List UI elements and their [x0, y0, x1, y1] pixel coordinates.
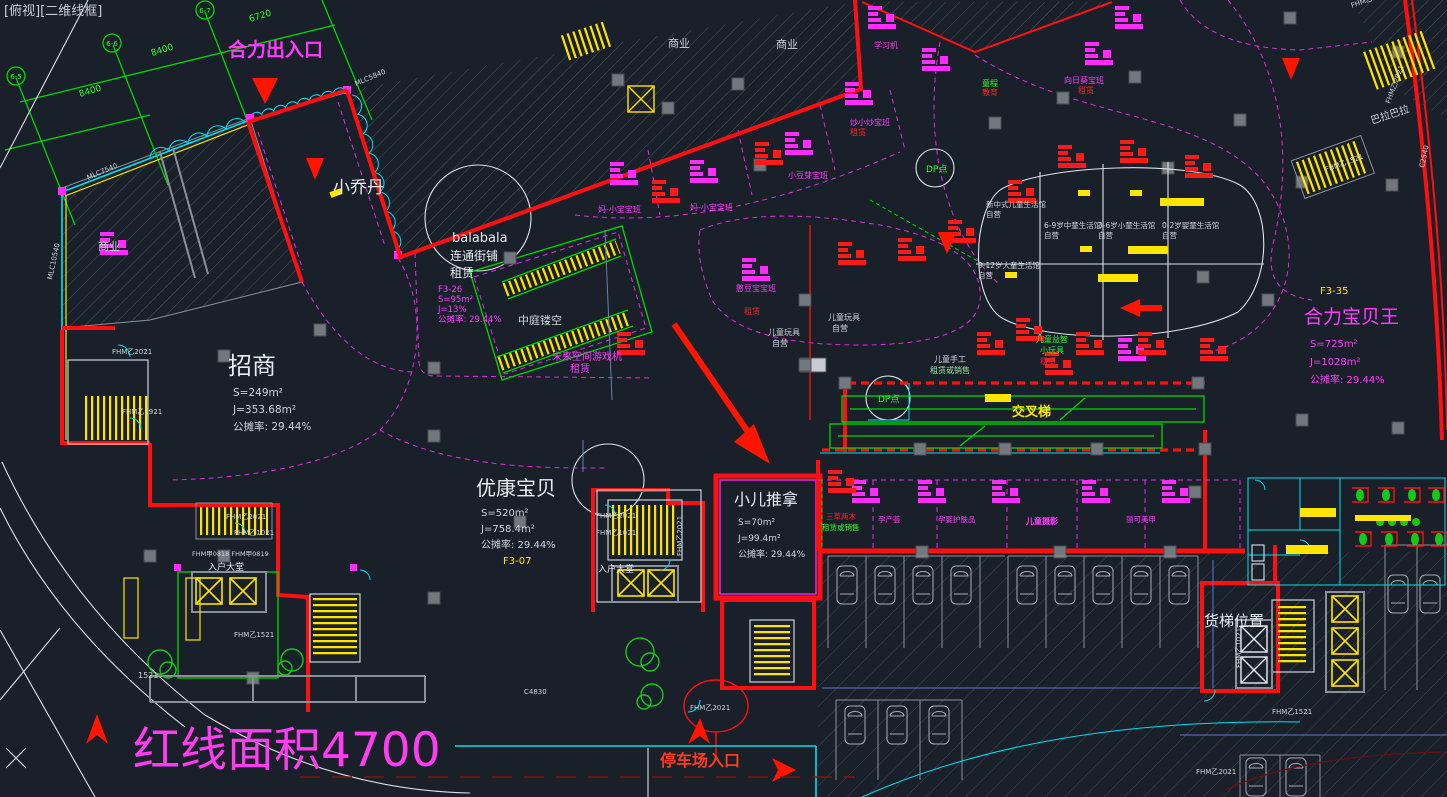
shop-label: 儿童摄影: [1025, 516, 1058, 526]
kids-zone-sub: 租赁: [1040, 356, 1056, 366]
door-tag: FHM乙1521: [234, 631, 274, 639]
kids-zone-sub: 自营: [832, 323, 848, 333]
life-hall-label: 3-6岁小童生活馆: [1098, 220, 1156, 230]
kids-zone-label: 儿童益智: [1036, 334, 1068, 344]
life-hall-label: 6-9岁中童生活馆: [1044, 220, 1102, 230]
life-hall-blob: [976, 162, 1264, 340]
shops-row: [818, 480, 1240, 548]
classroom-sub: 租赁: [744, 306, 760, 316]
kids-zone-label: 儿童手工: [934, 354, 966, 364]
entrance-label: 合力出入口: [228, 38, 323, 61]
kids-zone-sub: 自营: [772, 338, 788, 348]
door-tag: FHM乙2021: [112, 348, 152, 356]
youkang-share: 公摊率: 29.44%: [481, 538, 556, 551]
balabala-line3: 租赁: [450, 266, 474, 280]
life-hall-label: 0-2岁婴童生活馆: [1162, 220, 1220, 230]
balabala-code: F3-26: [438, 285, 462, 295]
classroom-label: 炒小炒宝班: [850, 117, 890, 127]
door-tag: FHM乙1521: [1272, 708, 1312, 716]
life-hall-label: 9-12岁大童生活馆: [978, 260, 1041, 270]
callout-arrow-line: [674, 324, 748, 432]
youkang-code: F3-07: [503, 556, 531, 567]
tuina-name: 小儿推拿: [734, 490, 798, 509]
commercial-label: 商业: [98, 239, 120, 253]
door-tag: FHM乙2021: [596, 512, 636, 520]
dp-point-label: DP点: [878, 394, 899, 405]
classroom-sub: 租赁: [850, 127, 866, 137]
life-hall-sub: 自营: [986, 209, 1001, 219]
shop-sub: 租赁或销售: [822, 522, 860, 532]
life-hall-label: 新中式儿童生活馆: [986, 199, 1046, 209]
classroom-sub: 租赁: [1078, 85, 1094, 95]
baobeiwang-s: S=725m²: [1310, 339, 1358, 350]
life-hall-sub: 自营: [1098, 230, 1114, 240]
viewport-control-label[interactable]: [俯视][二维线框]: [4, 3, 102, 19]
wall-tag: C2540: [1418, 145, 1431, 169]
life-hall-sub: 自营: [1162, 230, 1178, 240]
road-arrow-icon: [1282, 58, 1300, 80]
shop-label: 孕婴护肤品: [938, 514, 976, 524]
grid-bubble: 6-5: [10, 73, 21, 81]
baobeiwang-j: J=1028m²: [1309, 357, 1361, 368]
classroom-label: 小豆芽宝班: [788, 170, 828, 180]
grid-dimension: 8400: [150, 43, 175, 59]
wall-tag: C4830: [524, 688, 547, 696]
left-arrow-icon: [1120, 299, 1162, 317]
lower-walls-and-plants: [148, 638, 663, 709]
kids-zone-sub: 租赁或销售: [930, 365, 970, 375]
classroom-label: 妈-小宝宝班: [598, 204, 641, 214]
cross-escalator-label: 交叉梯: [1012, 404, 1051, 420]
kids-zone-label: 小玩具: [1040, 346, 1064, 355]
life-hall-sub: 自营: [1044, 230, 1060, 240]
door-tag: FHM乙2021: [226, 513, 266, 521]
wall-tag: MLC10540: [46, 242, 62, 280]
classroom-label: 学习机: [874, 40, 898, 50]
tuina-share: 公摊率: 29.44%: [738, 548, 806, 560]
shop-label: 孕产荟: [878, 514, 901, 524]
freight-elevator-label: 货梯位置: [1204, 612, 1264, 630]
door-tag: FHM乙1921: [122, 408, 162, 416]
grid-bubble: 6-7: [199, 7, 210, 15]
classroom-sub: 教育: [982, 87, 998, 97]
door-tag: FHM甲0818 FHM甲0819: [192, 550, 269, 558]
baobeiwang-name: 合力宝贝王: [1304, 306, 1399, 328]
youkang-name: 优康宝贝: [476, 476, 556, 500]
door-tag: FHM乙1021: [234, 529, 274, 537]
balabala-line2: 连通街铺: [450, 248, 498, 263]
cad-viewport[interactable]: 6-7 6-6 6-5 6720 8400 8400: [0, 0, 1447, 797]
zhaoshang-j: J=353.68m²: [232, 404, 296, 416]
dp-point-label: DP点: [926, 164, 947, 175]
classroom-label: 妈-小宝宝班: [690, 202, 733, 212]
baobeiwang-code: F3-35: [1320, 286, 1348, 297]
tenant-label: 小乔丹: [333, 178, 384, 198]
entry-lobby-label: 入户大堂: [598, 563, 634, 575]
callout-arrow-head: [734, 424, 770, 464]
classroom-label: 童程: [982, 78, 998, 88]
door-tag: FHM乙2021: [1196, 768, 1236, 776]
youkang-s: S=520m²: [481, 508, 529, 519]
commercial-label: 商业: [776, 37, 798, 51]
door-tag: FHM乙1021: [596, 529, 636, 537]
zhaoshang-s: S=249m²: [233, 387, 283, 399]
balabala-share: 公摊率: 29.44%: [438, 314, 501, 325]
red-line-area-label: 红线面积4700: [133, 723, 441, 778]
classroom-label: 憨豆宝宝班: [736, 283, 776, 293]
entry-lobby-label: 入户大堂: [208, 561, 244, 573]
balabala-s: S=95m²: [438, 295, 473, 305]
classroom-label: 向日葵宝班: [1064, 75, 1104, 85]
parking-entrance-label: 停车场入口: [660, 751, 740, 770]
youkang-j: J=758.4m²: [480, 524, 535, 535]
zhaoshang-share: 公摊率: 29.44%: [233, 420, 311, 433]
future-space-label: 未来空间游戏机: [552, 350, 622, 363]
zhaoshang-name: 招商: [228, 352, 276, 380]
grid-dimension: 6720: [248, 9, 273, 25]
door-tag: FHM乙1021: [1235, 628, 1243, 668]
entrance-arrow-icon: [252, 78, 278, 104]
north-arrow-icon: [86, 714, 108, 744]
floor-plan-canvas[interactable]: 6-7 6-6 6-5 6720 8400 8400: [0, 0, 1447, 797]
parking-right-arrow-icon: [772, 758, 796, 782]
life-hall-sub: 自营: [978, 270, 993, 280]
future-space-lease: 租赁: [570, 362, 590, 375]
tuina-s: S=70m²: [738, 518, 775, 528]
commercial-label: 商业: [668, 36, 690, 50]
balabala-name: balabala: [452, 231, 508, 246]
tenant-label: 巴拉巴拉: [1369, 102, 1411, 127]
kids-zone-label: 儿童玩具: [828, 312, 860, 322]
corridor-arrow-icon: [306, 158, 324, 180]
tuina-j: J=99.4m²: [737, 534, 781, 544]
atrium-label: 中庭镂空: [518, 313, 562, 327]
door-tag: FHM乙2021: [690, 704, 730, 712]
shop-label: 丽可美甲: [1126, 514, 1156, 524]
door-tag: FHM乙2021: [676, 516, 684, 556]
balabala-j: J=13%: [437, 305, 467, 315]
baobeiwang-share: 公摊率: 29.44%: [1310, 373, 1385, 386]
grid-dimension: 8400: [78, 84, 103, 100]
kids-zone-label: 儿童玩具: [768, 327, 800, 337]
grid-bubble: 6-6: [106, 40, 118, 48]
shop-label: 三草两木: [826, 511, 856, 521]
wall-tag: 1521: [138, 671, 158, 680]
